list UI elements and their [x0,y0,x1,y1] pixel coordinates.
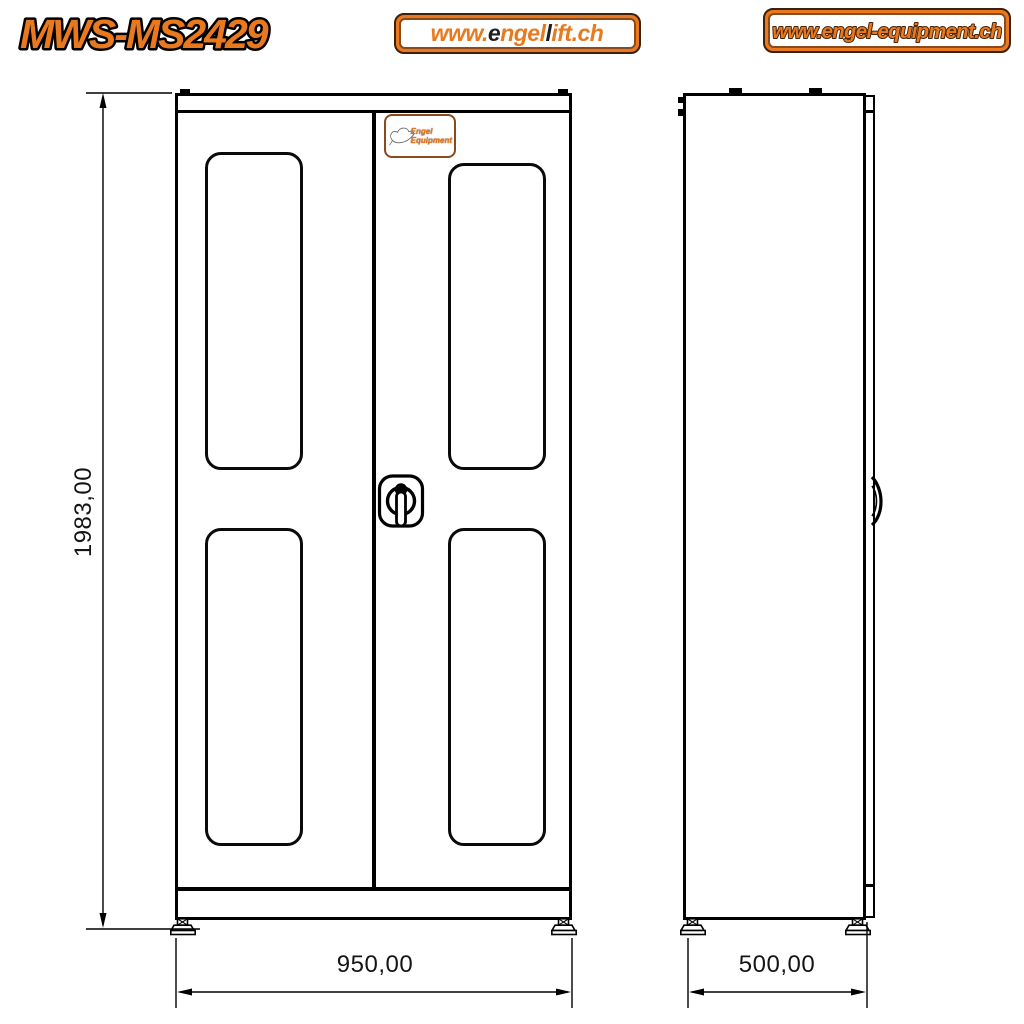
width-arrow-left [177,989,192,996]
technical-drawing-page: MWS-MS2429 www.engellift.ch www.engel-eq… [0,0,1024,1024]
width-dimension-label: 950,00 [295,951,455,979]
height-dimension-label: 1983,00 [14,442,154,582]
depth-arrow-right [851,989,866,996]
width-arrow-right [556,989,571,996]
height-arrow-up [100,93,107,108]
depth-arrow-left [689,989,704,996]
height-arrow-down [100,913,107,928]
depth-dimension-label: 500,00 [697,951,857,979]
